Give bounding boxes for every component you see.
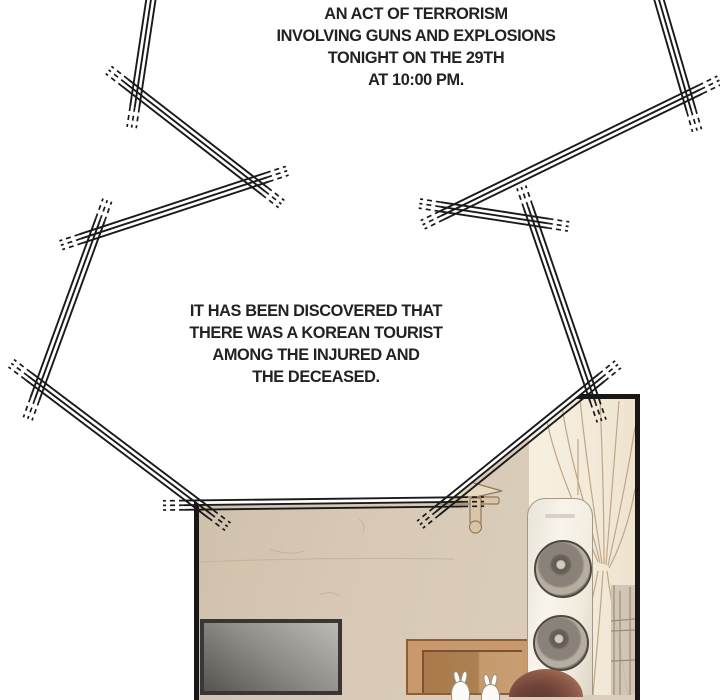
bunny-figurine-left bbox=[450, 670, 472, 700]
room-photo bbox=[194, 394, 640, 700]
dresser-opening bbox=[422, 650, 522, 693]
bunny-figurine-right bbox=[480, 673, 502, 700]
narration-line: INVOLVING GUNS AND EXPLOSIONS bbox=[272, 25, 560, 47]
narration-line: TONIGHT ON THE 29TH bbox=[272, 47, 560, 69]
narration-text-block-2: IT HAS BEEN DISCOVERED THAT THERE WAS A … bbox=[166, 300, 466, 388]
tv-screen bbox=[200, 619, 342, 695]
speaker-driver-upper bbox=[534, 540, 592, 598]
bunny-body bbox=[451, 681, 470, 700]
narration-text-block-1: AN ACT OF TERRORISM INVOLVING GUNS AND E… bbox=[266, 3, 566, 91]
narration-line: AT 10:00 PM. bbox=[272, 69, 560, 91]
speaker-brand-label bbox=[545, 514, 575, 518]
speaker-driver-lower bbox=[533, 615, 589, 671]
narration-line: THE DECEASED. bbox=[172, 366, 460, 388]
narration-line: IT HAS BEEN DISCOVERED THAT bbox=[172, 300, 460, 322]
narration-line: AMONG THE INJURED AND bbox=[172, 344, 460, 366]
narration-line: THERE WAS A KOREAN TOURIST bbox=[172, 322, 460, 344]
bunny-body bbox=[481, 684, 500, 700]
narration-line: AN ACT OF TERRORISM bbox=[272, 3, 560, 25]
tv-screen-glass bbox=[204, 623, 338, 691]
comic-panel: AN ACT OF TERRORISM INVOLVING GUNS AND E… bbox=[0, 0, 720, 700]
speaker-tower bbox=[527, 498, 593, 695]
